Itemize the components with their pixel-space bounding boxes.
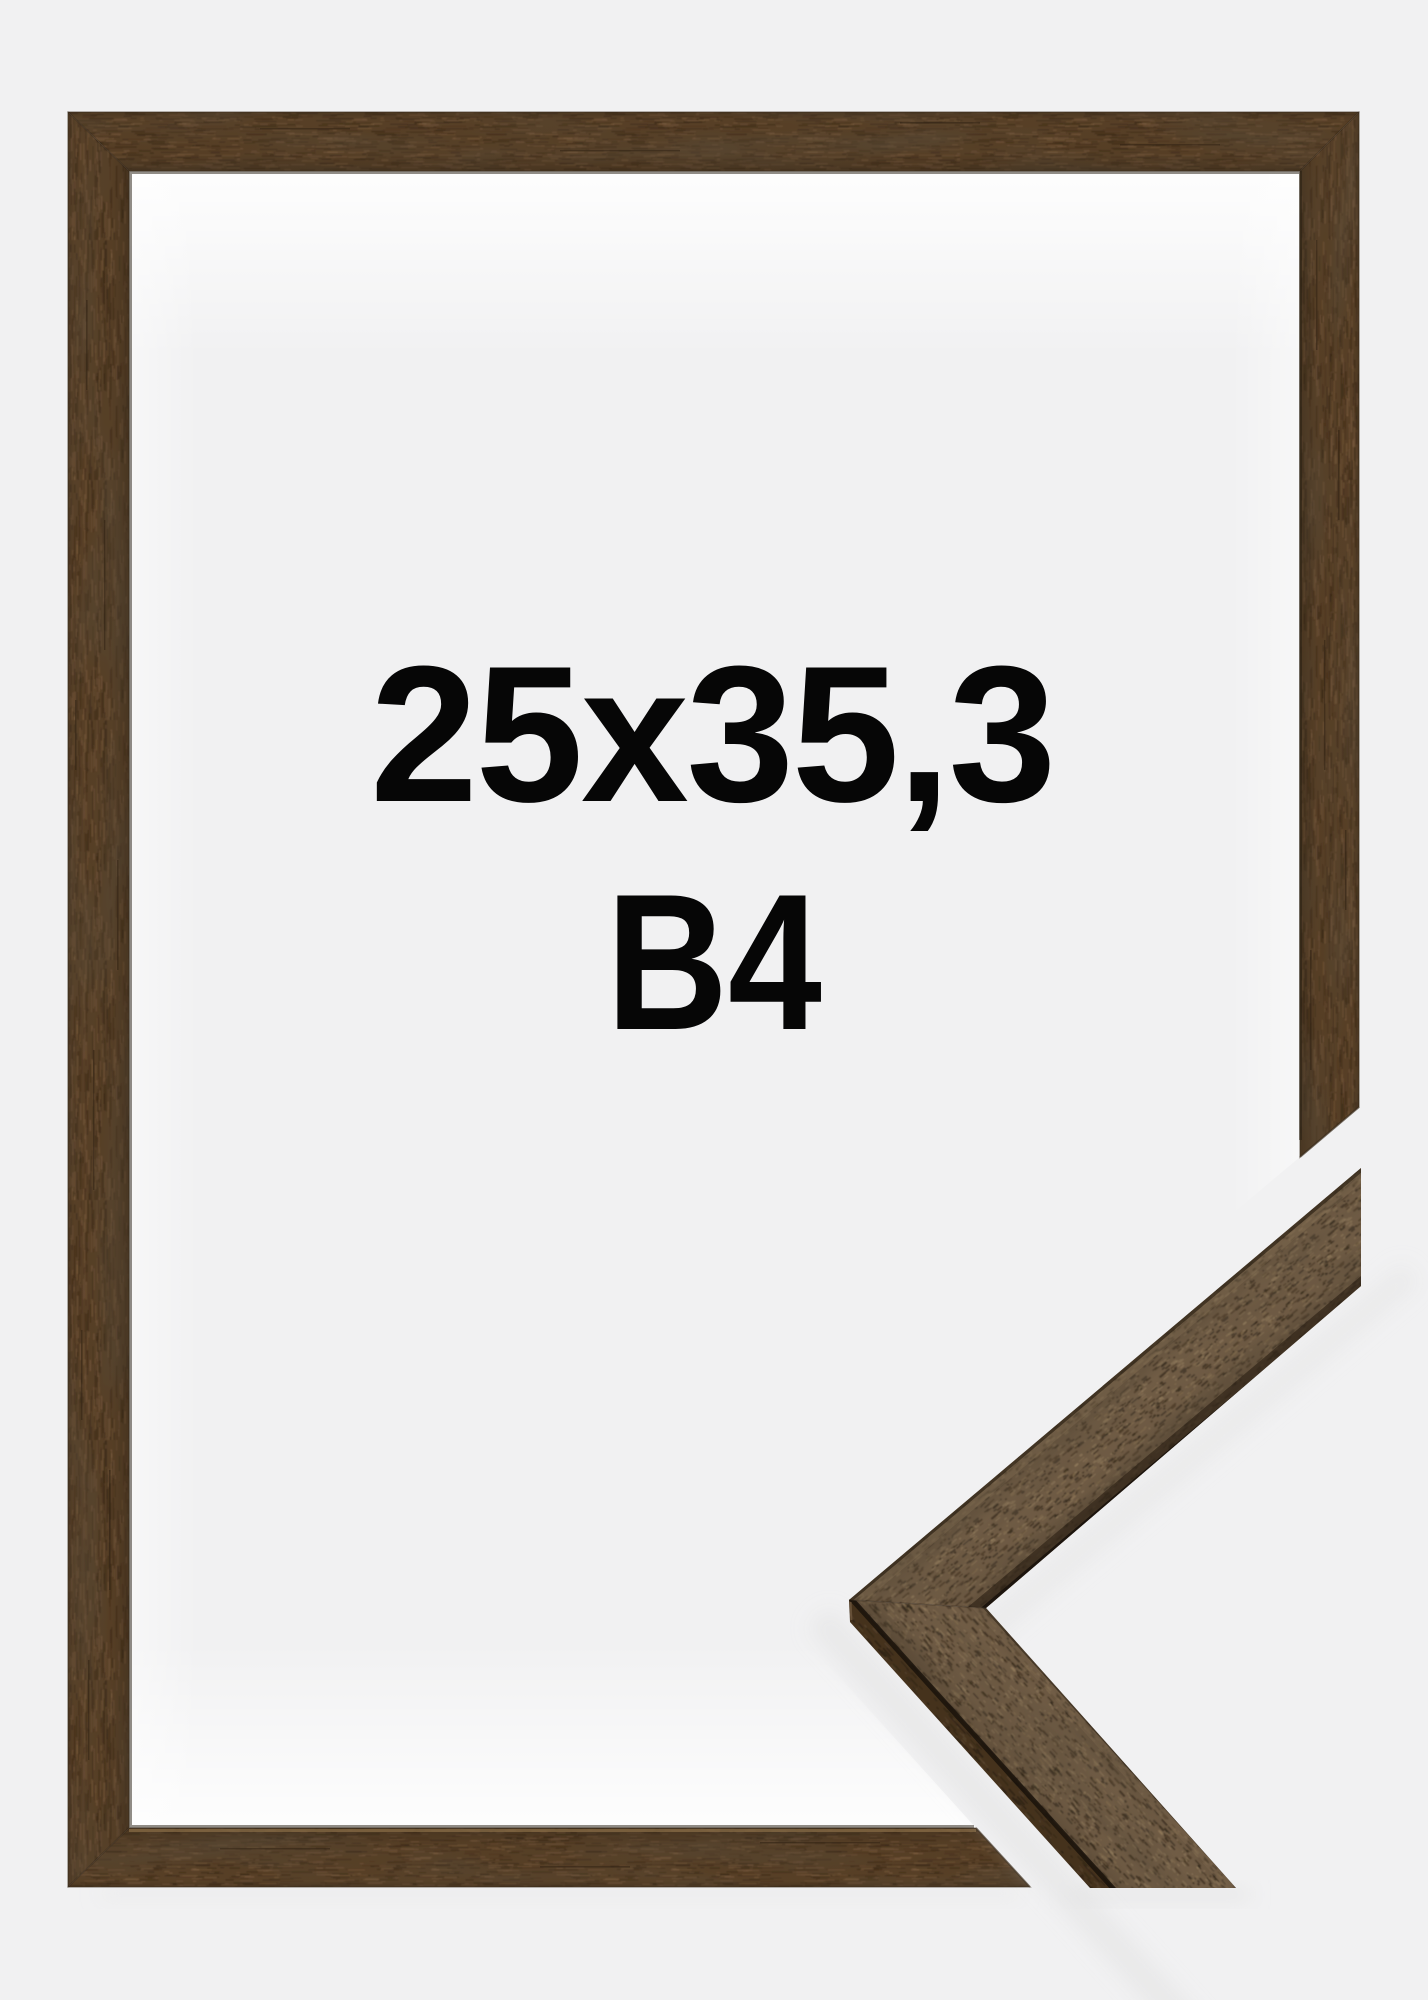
svg-text:B4: B4 (606, 853, 822, 1071)
svg-text:25x35,3: 25x35,3 (370, 626, 1054, 843)
